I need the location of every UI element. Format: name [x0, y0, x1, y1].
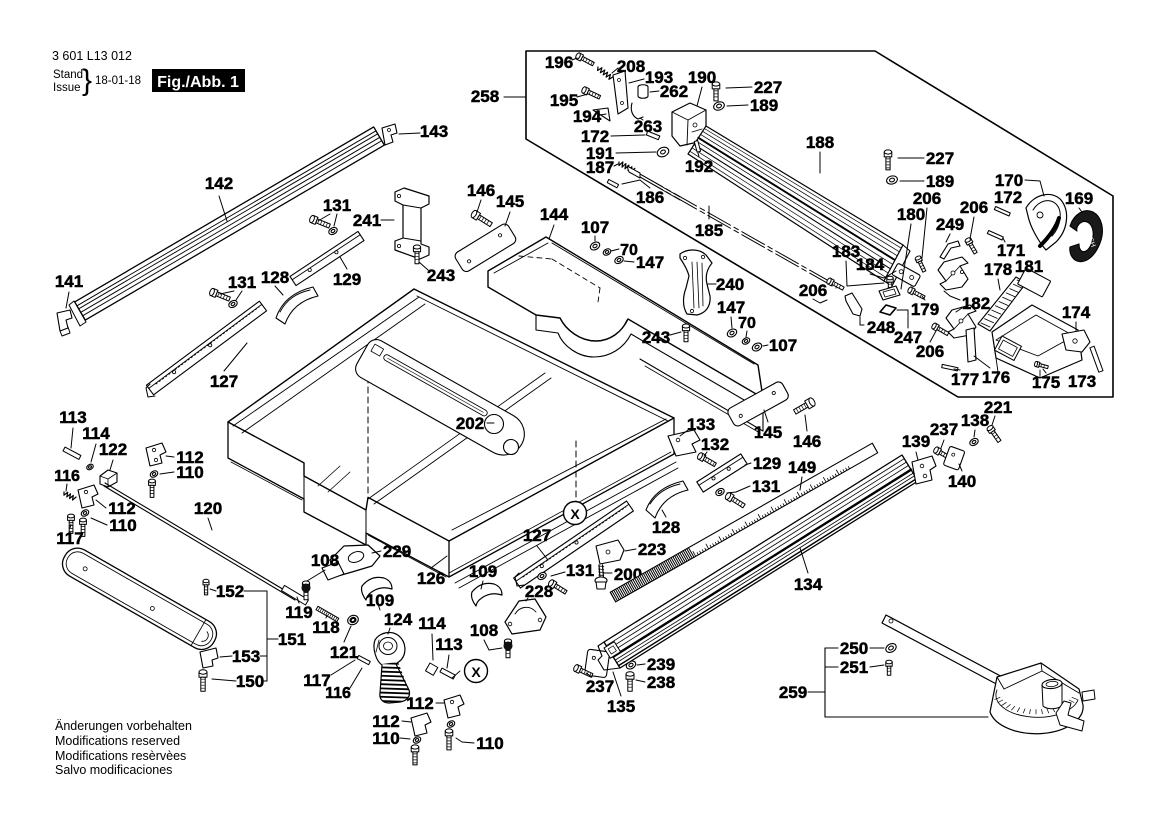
svg-text:176: 176 [982, 368, 1010, 387]
svg-text:X: X [570, 506, 580, 522]
svg-text:131: 131 [566, 561, 594, 580]
svg-text:196: 196 [545, 53, 573, 72]
svg-text:174: 174 [1062, 303, 1091, 322]
svg-text:131: 131 [323, 196, 351, 215]
svg-text:248: 248 [867, 318, 895, 337]
svg-text:249: 249 [936, 215, 964, 234]
svg-text:Modifications reserved: Modifications reserved [55, 734, 180, 748]
svg-text:3 601 L13 012: 3 601 L13 012 [52, 49, 132, 63]
svg-text:172: 172 [994, 188, 1022, 207]
svg-text:117: 117 [303, 671, 330, 690]
svg-text:144: 144 [540, 205, 569, 224]
svg-text:146: 146 [793, 432, 821, 451]
svg-text:179: 179 [911, 300, 939, 319]
svg-text:178: 178 [984, 260, 1012, 279]
svg-text:114: 114 [418, 614, 446, 633]
svg-text:186: 186 [636, 188, 664, 207]
svg-text:132: 132 [701, 435, 729, 454]
svg-text:247: 247 [894, 328, 922, 347]
svg-text:250: 250 [840, 639, 868, 658]
svg-text:128: 128 [261, 268, 289, 287]
svg-text:177: 177 [951, 370, 979, 389]
svg-text:70: 70 [738, 315, 756, 332]
svg-text:185: 185 [695, 221, 723, 240]
svg-text:202: 202 [456, 414, 484, 433]
svg-text:121: 121 [330, 643, 358, 662]
svg-text:238: 238 [647, 673, 675, 692]
svg-text:170: 170 [995, 171, 1023, 190]
svg-text:129: 129 [753, 454, 781, 473]
svg-text:206: 206 [960, 198, 988, 217]
svg-text:243: 243 [642, 328, 670, 347]
svg-text:}: } [82, 64, 92, 97]
svg-text:175: 175 [1032, 373, 1060, 392]
svg-text:229: 229 [383, 542, 411, 561]
svg-text:116: 116 [54, 468, 80, 485]
svg-text:113: 113 [435, 635, 462, 654]
svg-text:243: 243 [427, 266, 455, 285]
svg-text:143: 143 [420, 122, 448, 141]
svg-text:240: 240 [716, 275, 744, 294]
svg-text:181: 181 [1015, 257, 1043, 276]
svg-text:145: 145 [496, 192, 524, 211]
svg-text:152: 152 [216, 582, 244, 601]
svg-text:188: 188 [806, 133, 834, 152]
svg-text:149: 149 [788, 458, 816, 477]
svg-text:129: 129 [333, 270, 361, 289]
svg-text:Stand: Stand [53, 69, 83, 81]
svg-text:128: 128 [652, 518, 680, 537]
svg-text:142: 142 [205, 174, 233, 193]
svg-text:227: 227 [754, 78, 782, 97]
svg-text:221: 221 [984, 398, 1012, 417]
svg-text:122: 122 [99, 440, 127, 459]
svg-text:184: 184 [856, 255, 885, 274]
svg-text:Änderungen vorbehalten: Änderungen vorbehalten [55, 719, 192, 733]
svg-text:Fig./Abb. 1: Fig./Abb. 1 [157, 74, 239, 91]
svg-text:127: 127 [523, 526, 551, 545]
svg-text:146: 146 [467, 181, 495, 200]
svg-text:109: 109 [469, 562, 497, 581]
svg-text:141: 141 [55, 272, 83, 291]
svg-text:151: 151 [278, 630, 306, 649]
svg-text:133: 133 [687, 415, 715, 434]
svg-text:Salvo modificaciones: Salvo modificaciones [55, 763, 172, 777]
svg-text:126: 126 [417, 569, 445, 588]
svg-text:206: 206 [799, 281, 827, 300]
svg-text:139: 139 [902, 432, 930, 451]
svg-text:239: 239 [647, 655, 675, 674]
svg-text:18-01-18: 18-01-18 [95, 75, 141, 87]
svg-text:119: 119 [285, 603, 312, 622]
svg-text:140: 140 [948, 472, 976, 491]
svg-text:169: 169 [1065, 189, 1093, 208]
svg-text:X: X [471, 664, 481, 680]
svg-text:110: 110 [476, 734, 503, 753]
svg-text:118: 118 [312, 618, 339, 637]
svg-text:135: 135 [607, 697, 635, 716]
svg-text:110: 110 [109, 516, 136, 535]
svg-text:131: 131 [228, 273, 256, 292]
svg-text:150: 150 [236, 672, 264, 691]
svg-text:237: 237 [586, 677, 614, 696]
svg-text:107: 107 [581, 218, 609, 237]
svg-text:237: 237 [930, 420, 958, 439]
svg-text:131: 131 [752, 477, 780, 496]
svg-text:223: 223 [638, 540, 666, 559]
svg-text:173: 173 [1068, 372, 1096, 391]
svg-text:Modifications resèrvèes: Modifications resèrvèes [55, 749, 186, 763]
svg-text:109: 109 [366, 591, 394, 610]
svg-text:182: 182 [962, 294, 990, 313]
svg-text:153: 153 [232, 647, 260, 666]
svg-text:187: 187 [586, 158, 614, 177]
svg-text:192: 192 [685, 157, 713, 176]
svg-text:110: 110 [176, 463, 203, 482]
svg-text:258: 258 [471, 87, 499, 106]
svg-text:127: 127 [210, 372, 238, 391]
svg-text:120: 120 [194, 499, 222, 518]
svg-text:112: 112 [406, 694, 433, 713]
svg-text:117: 117 [56, 529, 83, 548]
svg-text:107: 107 [769, 336, 797, 355]
svg-text:108: 108 [311, 551, 339, 570]
svg-text:124: 124 [384, 610, 413, 629]
svg-text:108: 108 [470, 621, 498, 640]
svg-text:145: 145 [754, 423, 782, 442]
svg-text:194: 194 [573, 107, 602, 126]
svg-text:227: 227 [926, 149, 954, 168]
svg-text:251: 251 [840, 658, 868, 677]
svg-text:241: 241 [353, 211, 381, 230]
svg-text:206: 206 [913, 189, 941, 208]
svg-text:262: 262 [660, 82, 688, 101]
svg-text:110: 110 [372, 729, 399, 748]
svg-text:259: 259 [779, 683, 807, 702]
svg-text:134: 134 [794, 575, 823, 594]
svg-text:189: 189 [750, 96, 778, 115]
svg-text:Issue: Issue [53, 82, 81, 94]
svg-text:147: 147 [636, 253, 664, 272]
